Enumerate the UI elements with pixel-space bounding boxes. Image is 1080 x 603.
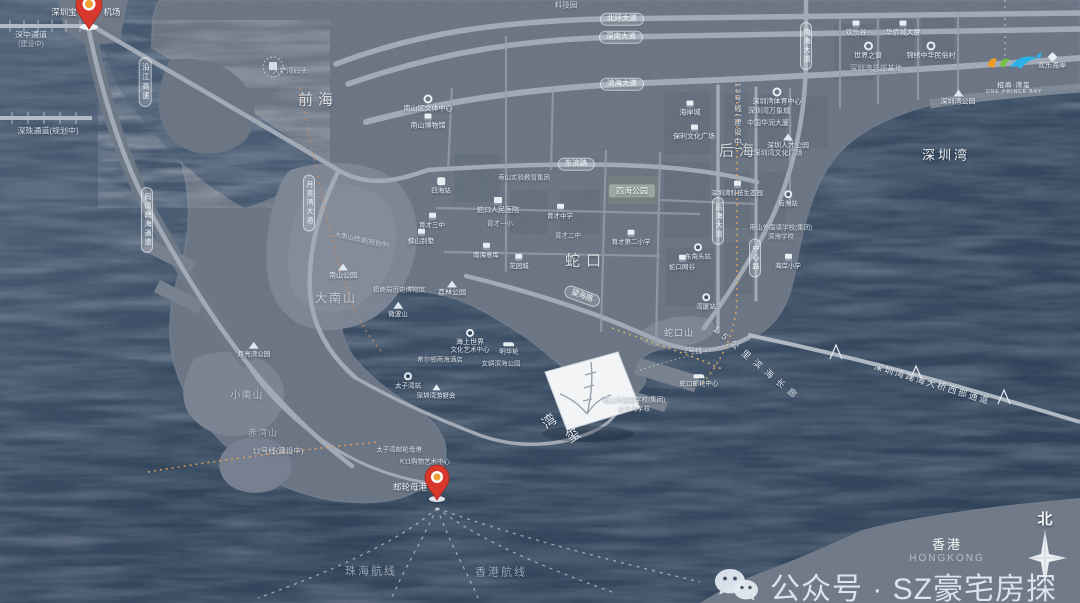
vpill-label: 中心路 [749, 239, 761, 278]
airport-pin [75, 0, 103, 36]
map-labels-layer: 前海后海蛇口深圳湾大南山小南山赤湾山蛇口山深中通道(建设中)深珠通道(规划中)大… [0, 0, 1080, 603]
text-label: 招商局历史博物馆 [373, 286, 425, 293]
airport-pin-dot [85, 0, 93, 8]
route-label: 香港航线 [475, 567, 527, 580]
poi-label: 太子湾站 [395, 372, 421, 389]
station-icon [702, 293, 710, 301]
pill-label: 滨海大道 [600, 78, 644, 91]
project-logo: 招商·湾玺 ONE PRINCE BAY [982, 50, 1046, 95]
text-label: 希尔顿南海酒店 [417, 356, 463, 363]
mountain-icon [783, 133, 793, 140]
vpill-label: 沿江高速 [139, 57, 152, 107]
poi-label: 世界之窗 [854, 41, 882, 60]
building-icon [516, 254, 523, 261]
area-label: 赤湾山 [248, 428, 278, 438]
poi-label: 华侨城大厦 [886, 20, 921, 37]
ship-icon [504, 342, 515, 346]
poi-label: 南山公园 [329, 263, 357, 280]
building-icon [483, 243, 490, 250]
poi-label: 蛇口人民医院 [477, 197, 519, 215]
ship-icon [694, 374, 705, 378]
building-icon [900, 20, 907, 27]
vtext-label: 13号线(建设中) [733, 83, 742, 152]
text-label: 南山外国语学校(集团) [750, 224, 813, 231]
vpill-label: 妈湾跨海通道 [141, 187, 153, 253]
poi-label: 深圳人才公园 [767, 133, 809, 150]
poi-label: 蛇口邮轮中心 [680, 374, 719, 387]
poi-label: 荔林公园 [438, 280, 466, 297]
poi-label: 育才三中 [419, 213, 445, 229]
poi-label: 南海意库 [473, 243, 499, 259]
mountain-icon [249, 342, 259, 349]
poi-label: 后海站 [778, 190, 798, 207]
vpill-label: 南海大道 [800, 22, 812, 70]
building-icon [418, 229, 425, 236]
park-label: 四海公园 [609, 184, 655, 197]
poi-label: 月亮湾公园 [238, 342, 271, 358]
text-label: 深圳湾文化广场 [754, 150, 803, 158]
area-label: 深圳湾 [922, 149, 970, 164]
building-icon [429, 213, 436, 220]
text-label: 南山外国语学校(集团) [603, 396, 666, 403]
vpill-label: 月亮湾大道 [303, 175, 315, 232]
route-label: 珠海航线 [345, 566, 397, 579]
mountain-icon [953, 89, 963, 96]
poi-label: 保利文化广场 [673, 124, 715, 141]
poi-label: 育才中学 [547, 204, 573, 220]
civic-icon [424, 94, 433, 103]
hospital-icon [494, 197, 502, 205]
logo-whale-icon [982, 50, 1046, 74]
poi-label: 深圳湾体育中心 [753, 87, 802, 106]
pill-label: 望海路 [563, 284, 602, 308]
watermark: 公众号 · SZ豪宅房探 [714, 564, 1057, 603]
building-icon [734, 181, 741, 188]
poi-label: 南山博物馆 [411, 113, 446, 130]
promenade-label: 15公里滨海长廊 [711, 324, 803, 404]
poi-label: 湾厦站 [696, 293, 716, 310]
text-label: 育才二中 [555, 232, 581, 239]
pill-label: 北环大道 [600, 13, 644, 26]
building-icon [557, 204, 564, 211]
text-label: (建设中) [18, 41, 44, 49]
text-label: 2号线 [684, 348, 702, 356]
civic-icon [864, 41, 873, 50]
building-icon [853, 20, 860, 27]
wechat-icon [714, 567, 758, 603]
area-label: 蛇口山 [664, 328, 694, 338]
mountain-icon [338, 263, 348, 270]
watermark-text: 公众号 · SZ豪宅房探 [770, 564, 1057, 603]
building-icon [785, 254, 792, 261]
mountain-icon [393, 302, 403, 309]
diamond-icon [1047, 52, 1057, 62]
station-icon [404, 372, 412, 380]
poi-label: 微波山 [388, 302, 408, 318]
logo-subname: ONE PRINCE BAY [982, 89, 1046, 95]
civic-icon [773, 87, 782, 96]
building-icon [691, 124, 698, 131]
text-label: 大南山栈道(规划中) [334, 231, 391, 250]
building-icon [628, 230, 635, 237]
project-name-char: 玺 [563, 424, 584, 445]
poi-label: 四海站 [431, 177, 451, 194]
poi-label: 育才第二小学 [612, 230, 651, 246]
text-label: 深圳湾总部基地 [850, 65, 903, 74]
shenzhen-bay-map: 前海后海蛇口深圳湾大南山小南山赤湾山蛇口山深中通道(建设中)深珠通道(规划中)大… [0, 0, 1080, 603]
poi-label: 鲸山别墅 [408, 229, 434, 245]
metro-icon [437, 177, 445, 185]
area-label: 小南山 [231, 390, 264, 402]
text-label: 太子湾学校 [618, 405, 651, 412]
cruise-terminal-pin [424, 463, 450, 508]
text-label: 文化艺术中心 [451, 346, 490, 353]
yacht-icon [432, 384, 440, 390]
poi-label: 海上世界 [456, 329, 484, 347]
logo-name: 招商·湾玺 [982, 79, 1046, 89]
poi-label: 深圳湾公园 [941, 89, 976, 106]
poi-label: 海岸小学 [775, 254, 801, 270]
airport-pin-label-right: 机场 [103, 6, 120, 18]
text-label: 南山实验教育集团 [498, 174, 550, 181]
text-label: 12号线(建设中) [253, 448, 304, 457]
poi-label: 深圳湾游艇会 [417, 384, 456, 399]
mountain-icon [447, 280, 457, 287]
text-label: 深珠通道(规划中) [17, 126, 78, 135]
area-label: 前海 [298, 91, 338, 108]
pill-label: 深南大道 [599, 31, 643, 44]
civic-icon [927, 41, 936, 50]
poi-label: 明华轮 [499, 342, 519, 355]
text-label: 科技园 [555, 2, 578, 11]
text-label: 大铲湾码头 [273, 68, 308, 76]
bridge-label: 深圳湾跨海大桥西部通道 [873, 361, 992, 406]
cruise-terminal-pin-label: 邮轮母港 [393, 481, 427, 493]
cruise-pin-dot [433, 473, 440, 480]
station-icon [784, 190, 792, 198]
station-icon [466, 329, 474, 337]
poi-label: 东角头站 [685, 243, 711, 260]
area-label: 大南山 [315, 292, 357, 306]
airport-pin-label-left: 深圳宝 [51, 6, 77, 18]
poi-label: 海岸城 [680, 100, 701, 117]
area-label: 蛇口 [565, 252, 607, 269]
project-name-char: 湾 [539, 410, 560, 431]
building-icon [687, 100, 694, 107]
text-label: 女娲滨海公园 [482, 360, 521, 367]
text-label: 深圳湾万象城 [748, 108, 790, 116]
poi-label: 锦绣中华民俗村 [907, 41, 956, 60]
vpill-label: 后海大道 [712, 197, 724, 245]
poi-label: 欢乐谷 [846, 20, 867, 37]
text-label: 深中通道 [15, 30, 47, 39]
text-label: 滨海学校 [768, 233, 794, 240]
poi-label: 深圳湾科技生态园 [711, 181, 763, 197]
poi-label: 花园城 [509, 254, 529, 270]
text-label: 太子湾邮轮母港 [376, 446, 422, 453]
building-icon [425, 113, 432, 120]
pill-label: 东滨路 [558, 158, 595, 171]
poi-label: 南山区文体中心 [404, 94, 453, 113]
text-label: 中国华润大厦 [747, 120, 789, 128]
text-label: 育才一小 [487, 220, 513, 227]
station-icon [694, 243, 702, 251]
